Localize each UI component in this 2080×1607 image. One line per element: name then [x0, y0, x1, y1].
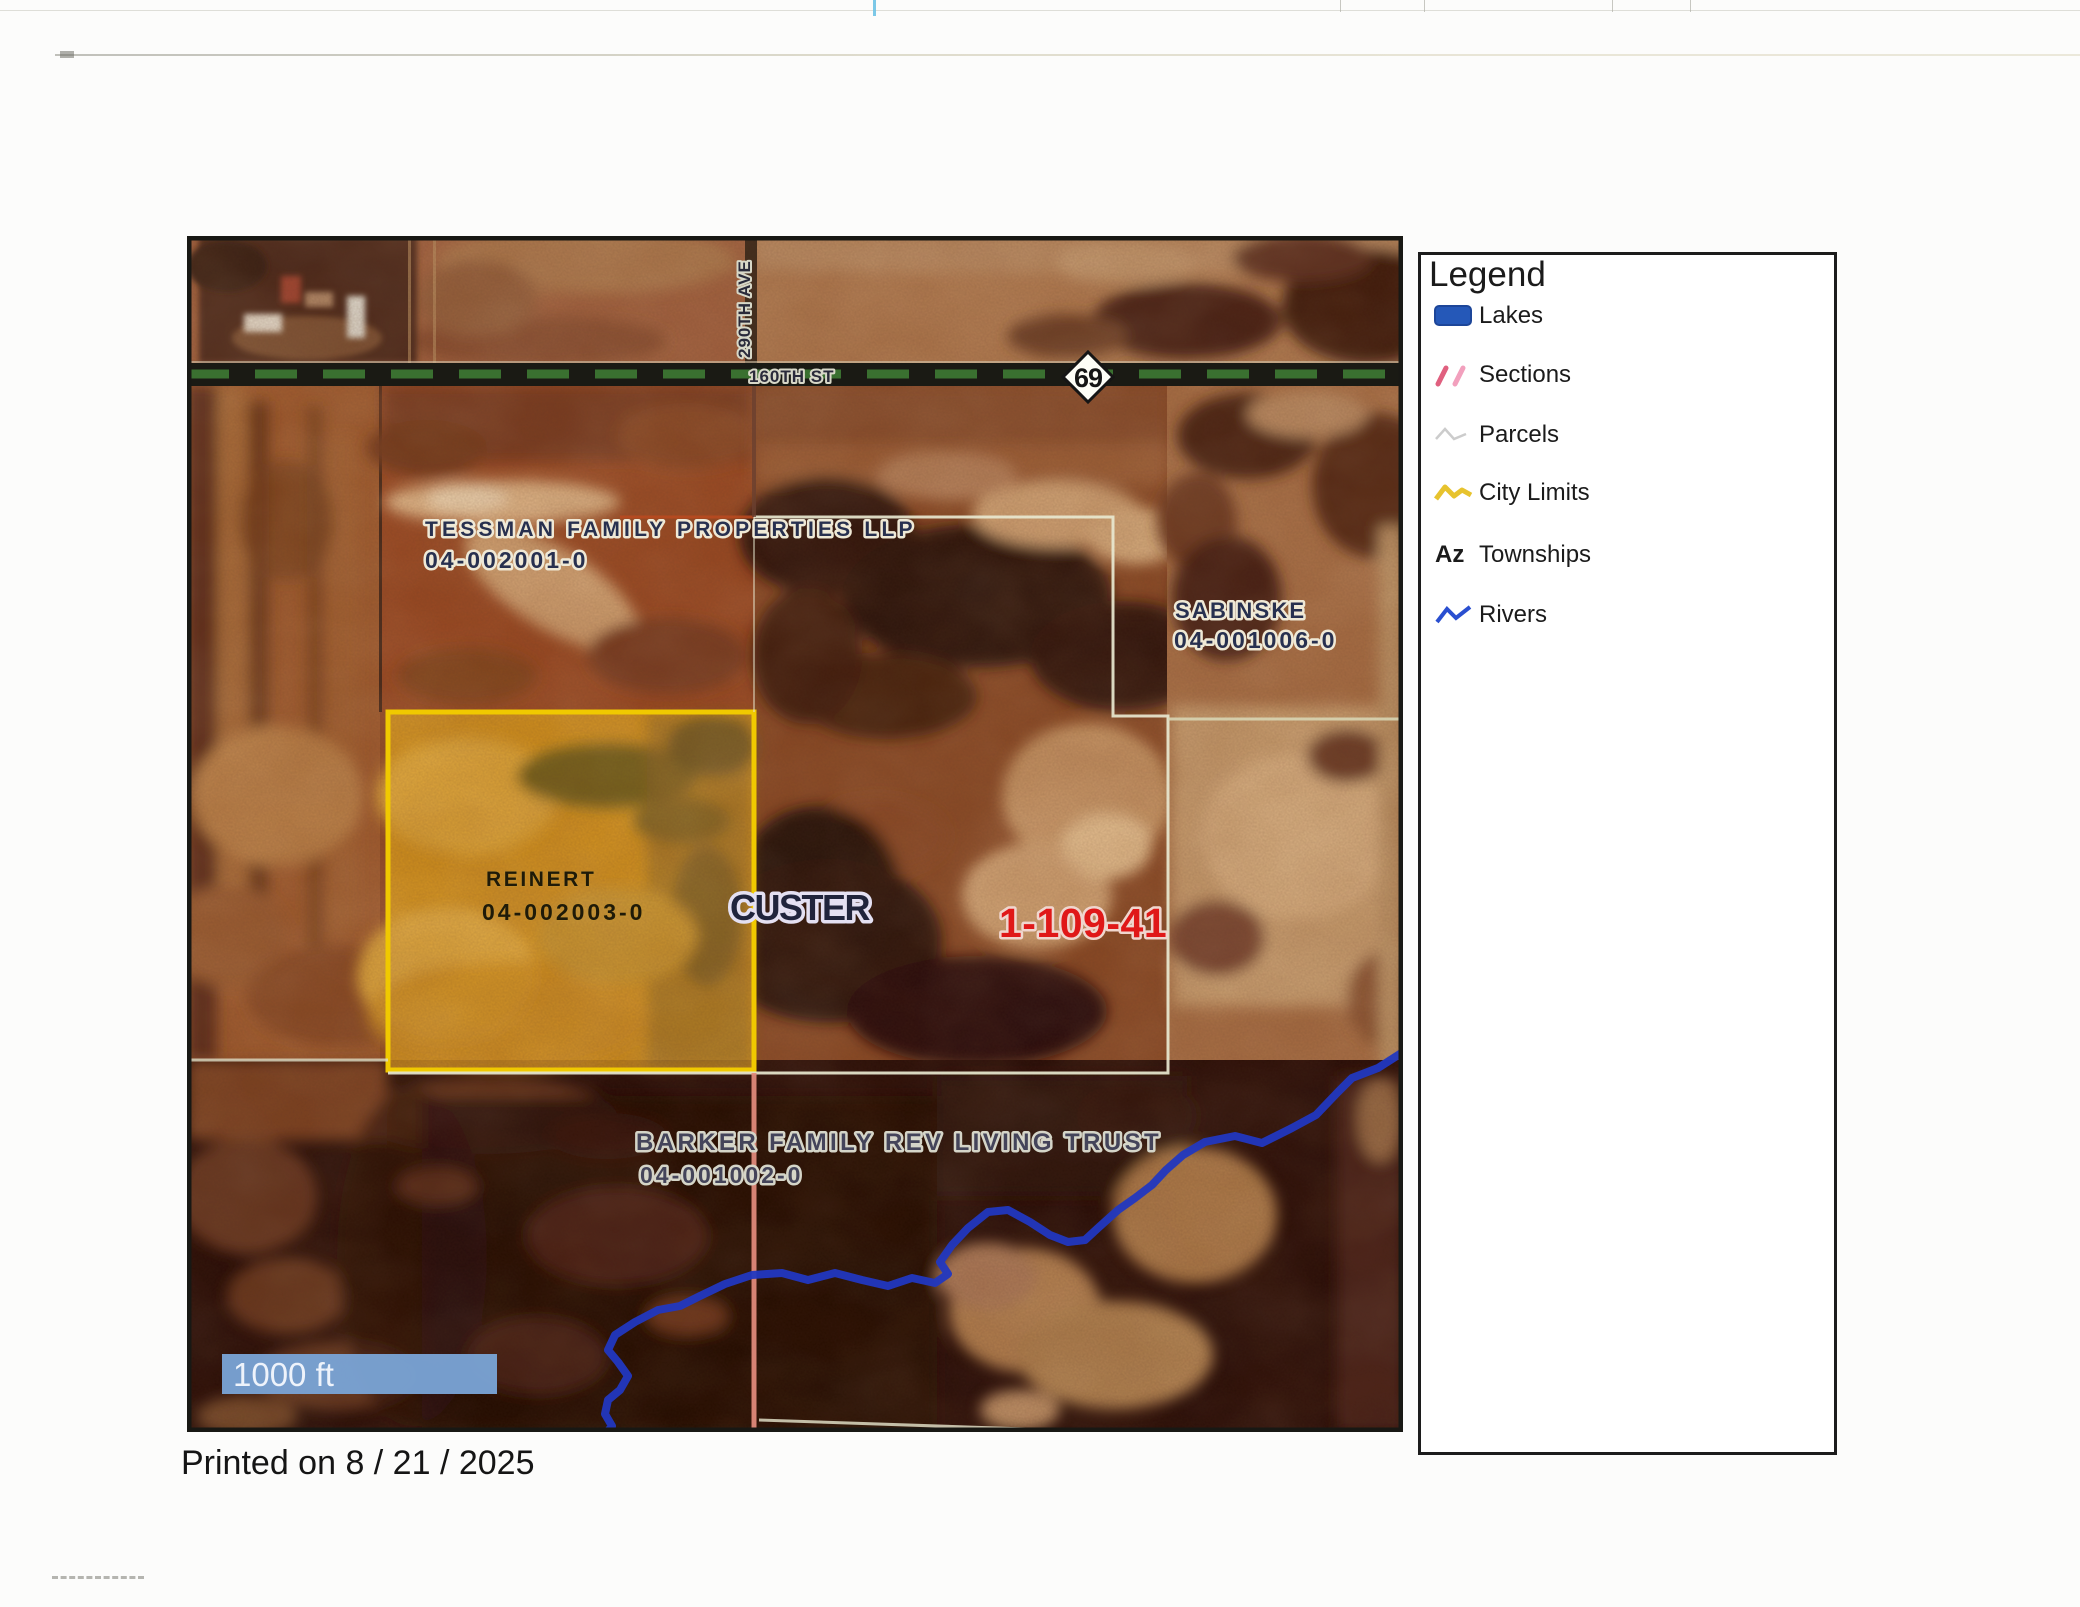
svg-text:SABINSKE: SABINSKE: [1175, 598, 1306, 623]
svg-text:04-001002-0: 04-001002-0: [640, 1162, 803, 1188]
svg-text:290TH AVE: 290TH AVE: [735, 260, 754, 358]
svg-text:1000 ft: 1000 ft: [233, 1356, 334, 1393]
svg-text:69: 69: [1074, 363, 1103, 393]
svg-text:1-109-41: 1-109-41: [999, 900, 1167, 946]
svg-text:04-001006-0: 04-001006-0: [1174, 627, 1337, 653]
svg-text:BARKER FAMILY REV LIVING TRUST: BARKER FAMILY REV LIVING TRUST: [636, 1129, 1162, 1156]
svg-text:160TH ST: 160TH ST: [749, 367, 834, 386]
svg-text:TESSMAN FAMILY PROPERTIES LLP: TESSMAN FAMILY PROPERTIES LLP: [425, 518, 917, 541]
svg-text:REINERT: REINERT: [486, 868, 596, 891]
svg-text:04-002003-0: 04-002003-0: [482, 899, 645, 925]
svg-text:CUSTER: CUSTER: [730, 887, 871, 928]
svg-text:04-002001-0: 04-002001-0: [425, 547, 588, 573]
